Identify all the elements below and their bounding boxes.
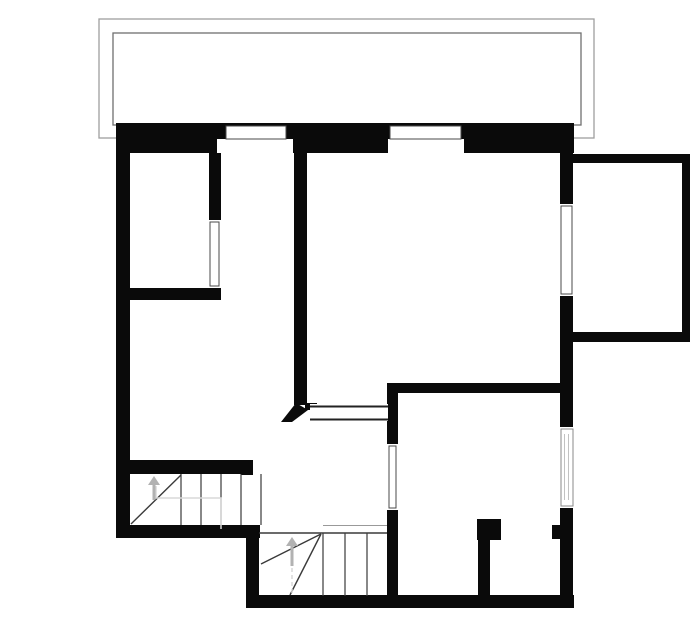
top-exterior-wall bbox=[116, 123, 574, 153]
door-bedroom bbox=[210, 222, 219, 286]
window-top-1 bbox=[226, 126, 286, 139]
window-top-1-cut bbox=[217, 139, 293, 153]
bottom-exterior-wall bbox=[246, 595, 574, 608]
bottom-left-exterior-wall bbox=[116, 525, 260, 538]
door-lower-room bbox=[389, 446, 396, 508]
window-top-2-cut bbox=[388, 139, 464, 153]
middle-partition-wall bbox=[388, 383, 573, 393]
annex-bottom-wall bbox=[573, 332, 690, 342]
balcony-outer-rail bbox=[99, 19, 594, 138]
bedroom-bottom-wall bbox=[129, 288, 221, 300]
plan-svg bbox=[0, 0, 700, 644]
window-right-lower bbox=[561, 429, 573, 506]
hallway-partition-wall bbox=[294, 123, 307, 405]
stairwell-top-wall bbox=[130, 460, 253, 474]
floor-plan-image bbox=[0, 0, 700, 644]
balcony-inner-rail bbox=[113, 33, 581, 125]
window-top-2 bbox=[390, 126, 461, 139]
stairwell-top-wall-step bbox=[241, 460, 253, 475]
bedroom-right-wall bbox=[209, 153, 221, 221]
right-wall-door-nub bbox=[552, 525, 560, 539]
stairs-upper-flight-direction-arrow-head bbox=[148, 476, 160, 485]
closet-partition-wall bbox=[478, 540, 490, 597]
stairs-upper-flight-walkline bbox=[156, 486, 221, 529]
room-left-wall-lower bbox=[387, 510, 398, 598]
annex-top-wall bbox=[573, 154, 690, 163]
room-left-wall-upper bbox=[387, 383, 398, 444]
annex-right-wall bbox=[682, 154, 690, 342]
open-door-leaf bbox=[281, 403, 308, 422]
closet-door-pier bbox=[477, 519, 501, 540]
window-right-upper bbox=[561, 206, 572, 294]
left-exterior-wall bbox=[116, 123, 130, 538]
stairs-lower-flight-direction-arrow-head bbox=[286, 537, 298, 546]
